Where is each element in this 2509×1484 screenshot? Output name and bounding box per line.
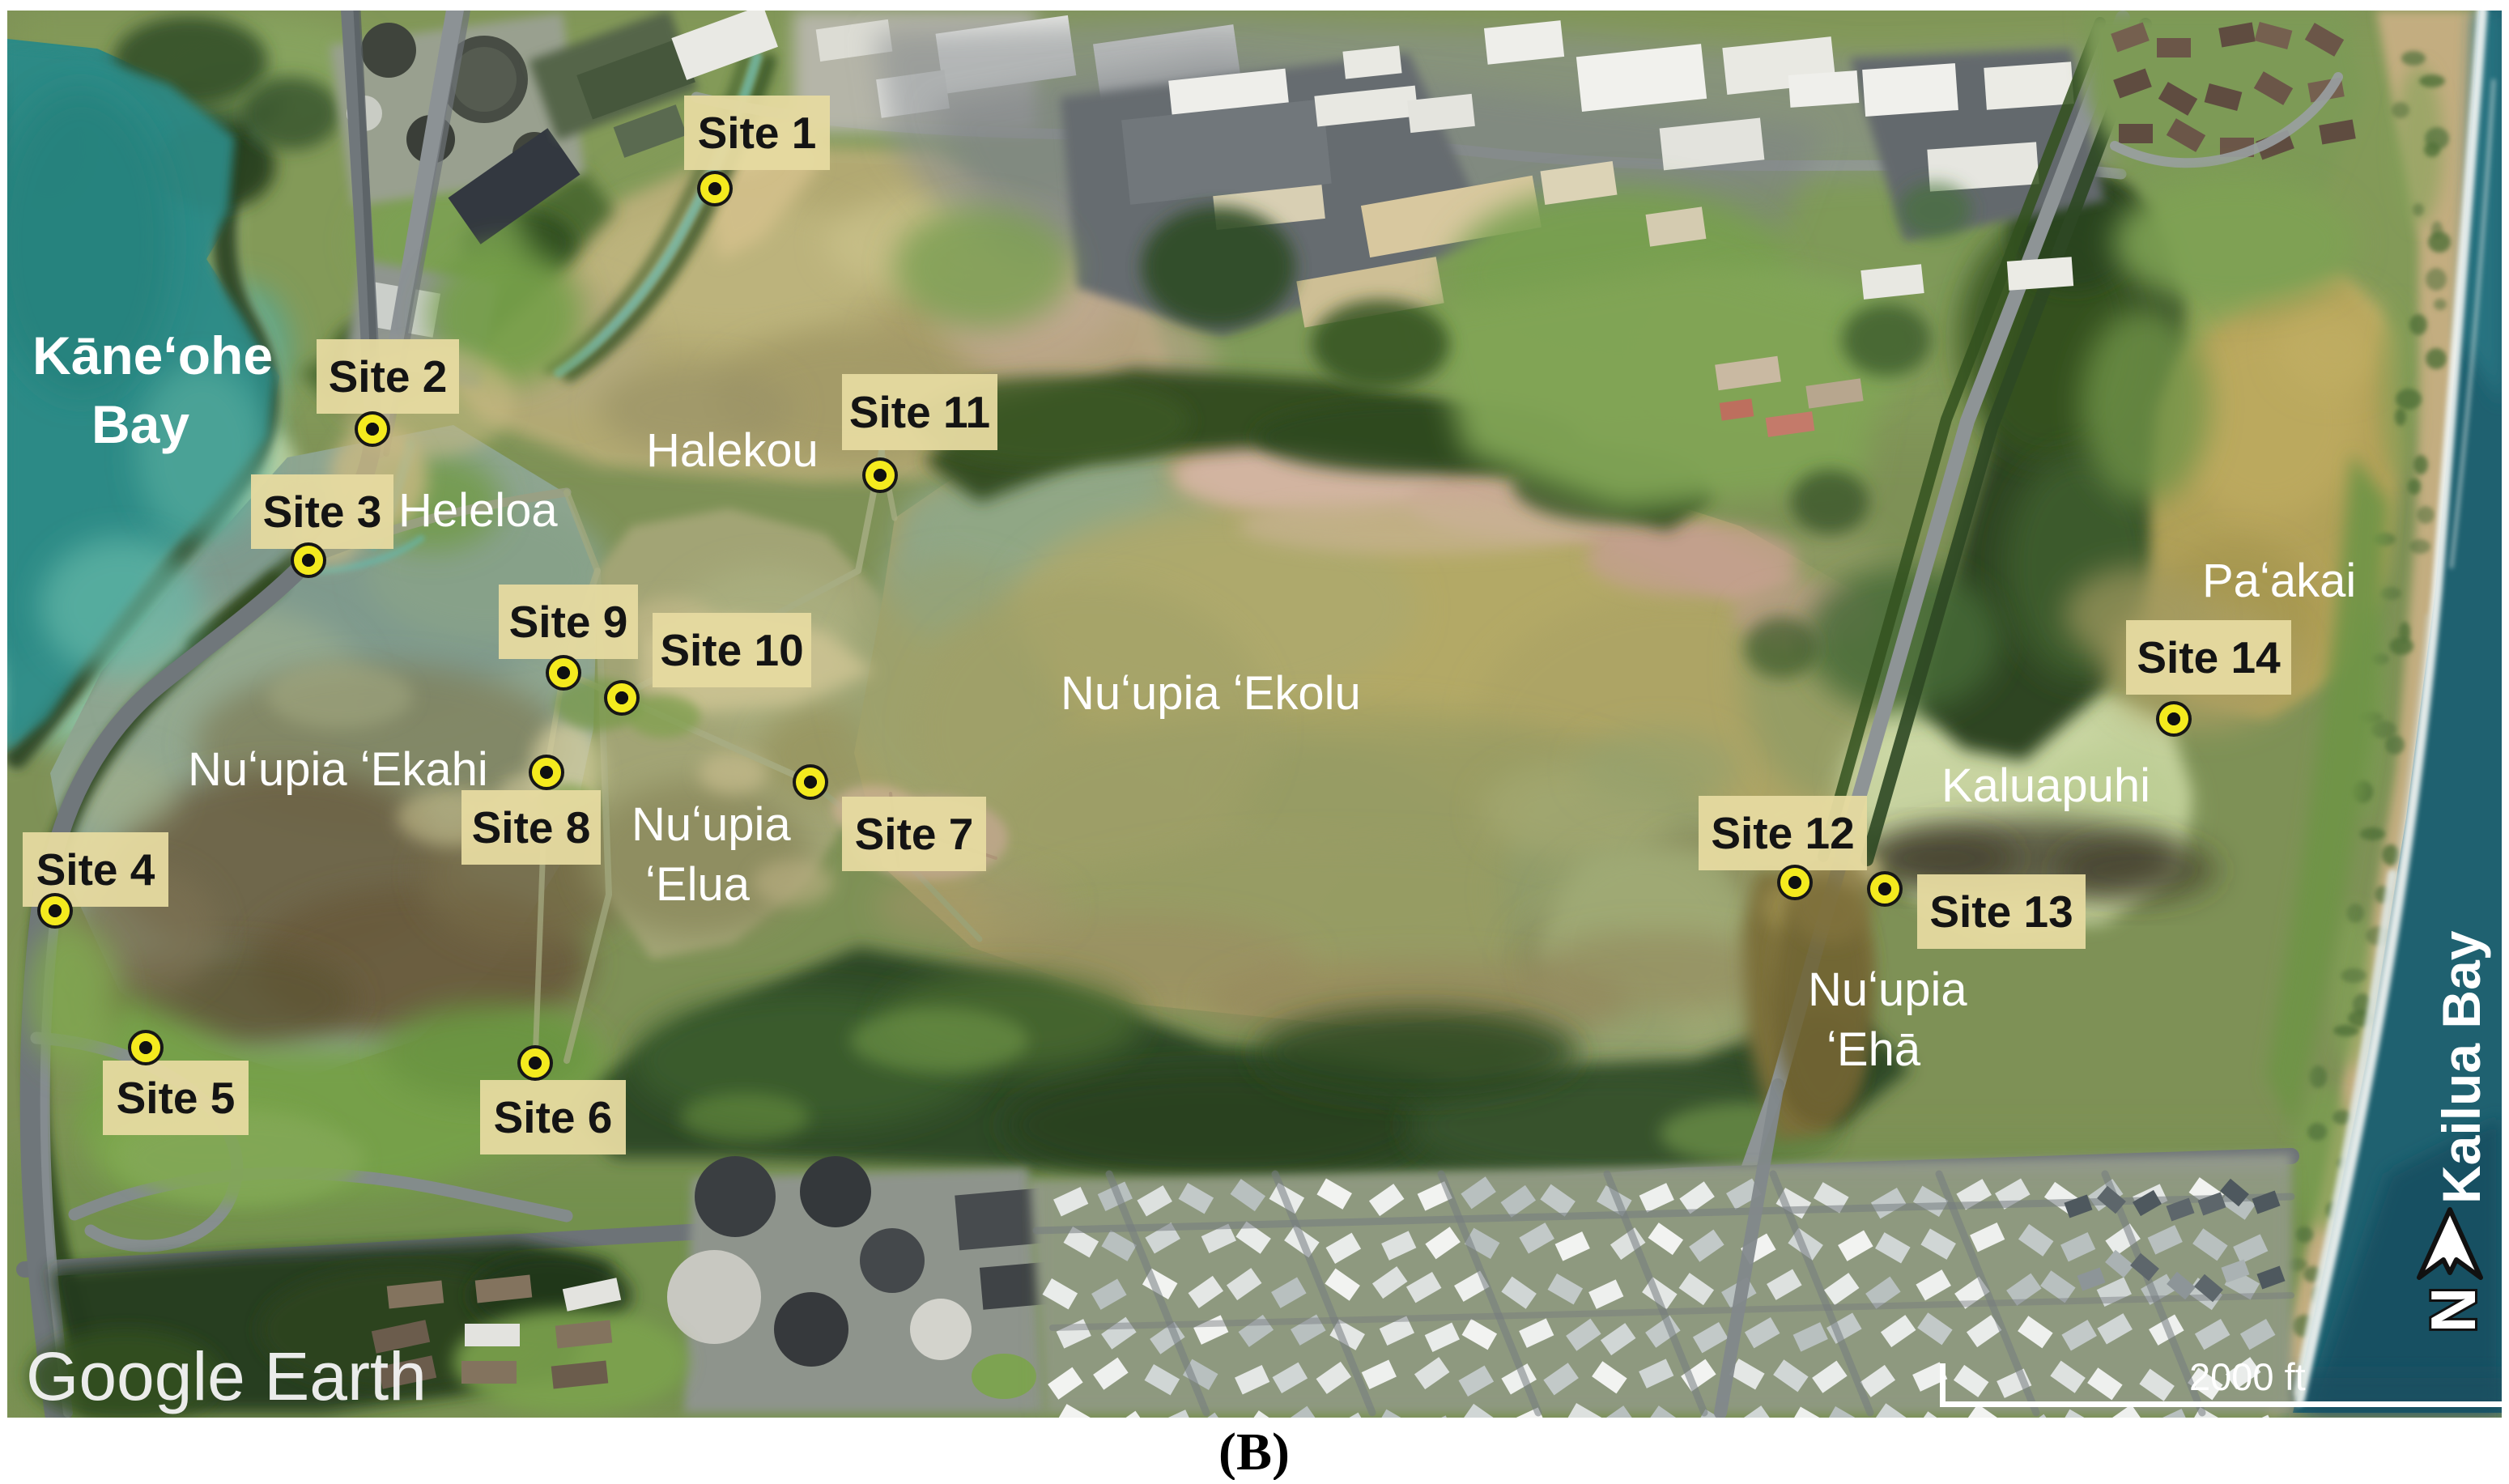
svg-text:ʻElua: ʻElua — [645, 858, 751, 911]
svg-text:Nuʻupia ʻEkahi: Nuʻupia ʻEkahi — [188, 743, 488, 796]
svg-text:Site 4: Site 4 — [36, 844, 155, 895]
svg-text:Site 5: Site 5 — [117, 1073, 236, 1123]
svg-text:Site 8: Site 8 — [472, 802, 591, 853]
svg-text:Site 10: Site 10 — [660, 625, 803, 675]
svg-text:Site 14: Site 14 — [2137, 632, 2281, 682]
svg-text:Paʻakai: Paʻakai — [2202, 555, 2356, 607]
svg-text:Site 11: Site 11 — [849, 387, 990, 437]
svg-text:Site 1: Site 1 — [698, 108, 817, 158]
svg-text:Site 2: Site 2 — [329, 351, 448, 402]
svg-text:Kāneʻohe: Kāneʻohe — [32, 325, 273, 385]
svg-text:Site 7: Site 7 — [855, 809, 974, 859]
svg-text:Kailua Bay: Kailua Bay — [2431, 930, 2491, 1204]
svg-text:Site 12: Site 12 — [1711, 808, 1854, 858]
svg-text:ʻEhā: ʻEhā — [1826, 1023, 1921, 1076]
svg-text:Nuʻupia: Nuʻupia — [632, 798, 791, 851]
svg-text:Nuʻupia: Nuʻupia — [1808, 963, 1967, 1016]
svg-text:(B): (B) — [1218, 1422, 1290, 1480]
svg-text:Nuʻupia ʻEkolu: Nuʻupia ʻEkolu — [1061, 667, 1361, 720]
svg-text:Kaluapuhi: Kaluapuhi — [1941, 759, 2150, 812]
svg-text:Google Earth: Google Earth — [26, 1338, 427, 1414]
svg-text:Halekou: Halekou — [646, 424, 819, 477]
svg-text:Bay: Bay — [91, 394, 189, 454]
svg-text:Heleloa: Heleloa — [398, 484, 558, 537]
svg-text:Site 3: Site 3 — [263, 487, 382, 537]
svg-text:Site 9: Site 9 — [509, 597, 628, 647]
svg-text:2000 ft: 2000 ft — [2189, 1355, 2306, 1398]
svg-text:N: N — [2418, 1287, 2489, 1333]
svg-text:Site 13: Site 13 — [1929, 887, 2073, 937]
svg-text:Site 6: Site 6 — [494, 1092, 613, 1142]
